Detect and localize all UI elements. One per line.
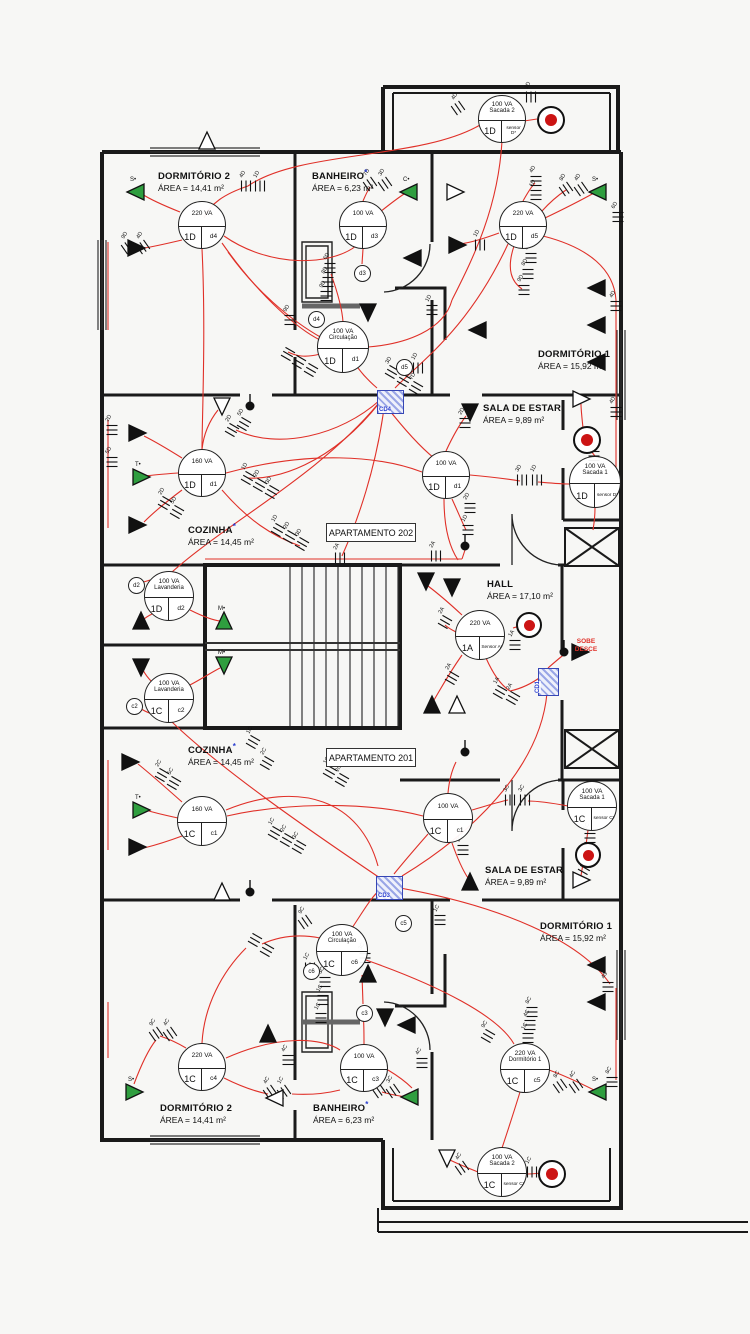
conductor-count-label: 1D — [271, 514, 280, 523]
conductor-count-label: 2A — [438, 606, 447, 615]
room-name: BANHEIRO* — [313, 1100, 374, 1114]
wire-path — [134, 1040, 156, 1084]
conductor-count-label: 1A — [508, 629, 517, 638]
room-name: DORMITÓRIO 1 — [540, 918, 612, 932]
sensor-light-dot — [545, 114, 557, 126]
outlet-type-letter: C• — [403, 177, 409, 183]
luminaire-sala-201: 100 VA1Cc1 — [423, 793, 473, 843]
stair-treads — [205, 567, 400, 726]
luminaire-d4: 220 VA1Dd4 — [178, 201, 226, 249]
luminaire-sacada2-202: 100 VASacada 21Dsensor D* — [478, 95, 526, 143]
outlet-green-triangle — [589, 1084, 606, 1100]
conductor-count-label: 8D — [559, 173, 568, 182]
conductor-count-label: 4D — [574, 173, 583, 182]
wire-path — [202, 249, 204, 449]
conductor-tick — [378, 177, 392, 191]
luminaire-switch-key: d4 — [201, 227, 225, 248]
conductor-count-label: 3D — [378, 168, 387, 177]
conductor-tick — [458, 846, 469, 855]
door-thresholds — [302, 306, 360, 1022]
conductor-count-label: 4C — [281, 1044, 290, 1053]
conductor-tick — [518, 475, 527, 486]
outlet-green-triangle — [133, 802, 150, 818]
wire-path — [402, 693, 547, 876]
outlet-white-triangle — [214, 883, 230, 900]
luminaire-circuit: 1D — [479, 121, 501, 142]
luminaire-circuit: 1D — [340, 227, 362, 248]
conductor-tick — [574, 182, 588, 196]
conductor-count-label: 5C — [167, 767, 176, 776]
conductor-tick — [304, 363, 318, 376]
outlet-green-triangle — [133, 469, 150, 485]
distribution-board-label: CD4 — [379, 407, 391, 413]
conductor-count-label: 1D — [530, 464, 539, 473]
luminaire-coz-201: 160 VA1Cc1 — [177, 796, 227, 846]
luminaire-coz-202: 160 VA1Dd1 — [178, 449, 226, 497]
luminaire-switch-key: d1 — [201, 475, 225, 496]
switch-key-d3: d3 — [354, 265, 371, 282]
wire-path — [446, 416, 466, 451]
conductor-count-label: 2D — [283, 521, 292, 530]
luminaire-switch-key: d3 — [362, 227, 386, 248]
conductor-count-label: 2A — [506, 682, 515, 691]
room-name: DORMITÓRIO 1 — [538, 346, 610, 360]
switch-key-c3: c3 — [356, 1005, 373, 1022]
outlet-type-letter: T• — [135, 795, 141, 801]
outlet-black-triangle — [398, 1017, 415, 1033]
room-note-asterisk: * — [233, 522, 236, 531]
luminaire-circuit: 1D — [500, 227, 522, 248]
luminaire-power: 100 VA — [582, 788, 603, 795]
luminaire-switch-key: c5 — [524, 1070, 549, 1092]
conductor-count-label: 6D — [611, 201, 620, 210]
luminaire-circuit: 1C — [501, 1070, 524, 1092]
conductor-count-label: 9C — [298, 906, 307, 915]
luminaire-power: 220 VA — [513, 210, 534, 217]
luminaire-hall: 220 VA1ASensor A* — [455, 610, 505, 660]
luminaire-c4: 220 VA1Cc4 — [178, 1043, 226, 1091]
room-label-dorm2-202: DORMITÓRIO 2ÁREA = 14,41 m² — [158, 168, 230, 193]
wire-path — [262, 936, 320, 944]
conductor-count-label: 1D — [529, 179, 538, 188]
conductor-tick — [409, 381, 423, 394]
conductor-tick — [321, 292, 332, 301]
room-label-banheiro-202: BANHEIRO*ÁREA = 6,23 m² — [312, 168, 373, 193]
conductor-count-label: 2D — [158, 487, 167, 496]
wire-path — [472, 800, 508, 810]
luminaire-power: 100 VA — [438, 803, 459, 810]
outlet-white-triangle — [447, 184, 464, 200]
conductor-count-label: 2D — [105, 414, 114, 423]
outlet-type-letter: S• — [130, 177, 136, 183]
distribution-board-cd1: CD1 — [538, 668, 559, 696]
conductor-count-label: 6D — [323, 252, 332, 261]
wire-path — [448, 762, 456, 793]
luminaire-circuit: 1C — [317, 952, 341, 975]
room-area: ÁREA = 14,45 m² — [188, 537, 254, 547]
outlet-type-letter: M• — [218, 650, 225, 656]
luminaire-power: 100 VA — [159, 680, 180, 687]
luminaire-power: 220 VA — [192, 1052, 213, 1059]
wire-path — [434, 655, 462, 700]
luminaire-room-tag: Sacada 2 — [489, 108, 514, 115]
conductor-tick — [335, 773, 349, 786]
outlet-black-triangle — [449, 237, 466, 253]
luminaire-switch-key: sensor C* — [591, 808, 616, 830]
conductor-count-label: 2C — [155, 759, 164, 768]
luminaire-circ-202: 100 VACirculação1Dd1 — [317, 321, 369, 373]
outlet-black-triangle — [588, 280, 605, 296]
outlet-black-triangle — [462, 873, 478, 890]
outlet-green-triangle — [589, 184, 606, 200]
conductor-tick — [476, 240, 485, 251]
conductor-tick — [603, 983, 614, 992]
luminaire-circuit: 1A — [456, 637, 479, 659]
room-name: COZINHA* — [188, 522, 254, 536]
conductor-count-label: 3C — [518, 784, 527, 793]
wire-path — [228, 252, 322, 338]
outlet-black-triangle — [424, 696, 440, 713]
wire-path — [146, 810, 178, 818]
conductor-count-label: 1A — [493, 676, 502, 685]
outlet-white-triangle — [439, 1150, 455, 1167]
conductor-count-label: 2A — [429, 540, 438, 549]
conductor-tick — [163, 1027, 177, 1041]
wire-path — [362, 249, 363, 264]
room-area: ÁREA = 9,89 m² — [485, 877, 563, 887]
conductor-count-label: 2D — [225, 414, 234, 423]
conductor-count-label: 9D — [283, 304, 292, 313]
luminaire-circuit: 1C — [179, 1069, 201, 1090]
wire-path — [224, 1078, 268, 1094]
outlet-black-triangle — [588, 994, 605, 1010]
wire-path — [292, 1090, 340, 1094]
conductor-count-label: 1C — [314, 1002, 323, 1011]
luminaire-switch-key: c1 — [201, 823, 226, 845]
switch-key-c5: c5 — [395, 915, 412, 932]
conductor-tick — [531, 191, 542, 200]
conductor-tick — [265, 485, 279, 498]
outlet-black-triangle — [360, 304, 376, 321]
conductor-count-label: 4D — [136, 231, 145, 240]
conductor-count-label: 1D — [473, 229, 482, 238]
luminaire-power: 160 VA — [192, 806, 213, 813]
conductor-count-label: 3D — [515, 464, 524, 473]
outlet-type-letter: T• — [135, 462, 141, 468]
luminaire-power: 100 VA — [436, 460, 457, 467]
luminaire-power: 160 VA — [192, 458, 213, 465]
luminaire-circuit: 1C — [424, 820, 447, 842]
luminaire-switch-key: sensor D* — [594, 484, 620, 507]
wire-path — [144, 240, 182, 248]
conductor-tick — [170, 505, 184, 518]
distribution-board-cd4: CD4 — [377, 390, 404, 414]
conductor-count-label: 4C — [455, 1152, 464, 1161]
ceiling-button-symbol — [461, 534, 470, 551]
conductor-tick — [432, 551, 441, 562]
luminaire-c3: 100 VA1Cc3 — [340, 1044, 388, 1092]
wire-path — [331, 274, 343, 322]
luminaire-power: 100 VA — [159, 578, 180, 585]
stair-note-desce: DESCE — [575, 646, 597, 653]
luminaire-switch-key: c3 — [363, 1070, 387, 1091]
conductor-count-label: 1D — [241, 462, 250, 471]
room-name: HALL — [487, 576, 553, 590]
conductor-tick — [298, 915, 312, 929]
sensor-light-point — [575, 842, 601, 868]
conductor-count-label: 4C — [163, 1018, 172, 1027]
conductor-tick — [519, 286, 530, 295]
wire-path — [248, 402, 380, 478]
conductor-count-label: 9C — [481, 1020, 490, 1029]
luminaire-sala-202: 100 VA1Dd1 — [422, 451, 470, 499]
luminaire-power: 220 VA — [470, 620, 491, 627]
outlet-green-triangle — [400, 184, 417, 200]
wire-path — [202, 410, 218, 449]
outlet-type-letter: S• — [128, 1077, 134, 1083]
luminaire-circuit: 1D — [145, 598, 168, 620]
luminaire-circuit: 1D — [318, 349, 342, 372]
outlet-black-triangle — [377, 1009, 393, 1026]
luminaire-circuit: 1D — [179, 475, 201, 496]
wire-path — [538, 482, 570, 484]
conductor-tick — [506, 691, 520, 704]
room-area: ÁREA = 14,41 m² — [160, 1115, 232, 1125]
conductor-tick — [510, 641, 521, 650]
wire-path — [236, 400, 380, 439]
conductor-count-label: 2D — [253, 469, 262, 478]
floor-plan-canvas: 4D1D9D4D4D1D7D3D8D4D4D1D6D1D6D8D9D4D4D6D… — [0, 0, 750, 1334]
luminaire-switch-key: d2 — [168, 598, 193, 620]
conductor-tick — [553, 1079, 567, 1093]
sensor-light-dot — [581, 434, 593, 446]
wire-path — [545, 193, 594, 218]
wire-path — [142, 194, 180, 212]
conductor-count-label: 3C — [503, 784, 512, 793]
conductor-tick — [149, 1027, 163, 1041]
conductor-count-label: 1D — [461, 514, 470, 523]
room-label-dorm2-201: DORMITÓRIO 2ÁREA = 14,41 m² — [160, 1100, 232, 1125]
conductor-count-label: 2A — [333, 542, 342, 551]
room-area: ÁREA = 14,41 m² — [158, 183, 230, 193]
room-area: ÁREA = 6,23 m² — [312, 183, 373, 193]
stair-note-sobe: SOBE — [577, 638, 595, 645]
luminaire-room-tag: Dormitório 1 — [509, 1057, 542, 1064]
luminaire-circ-201: 100 VACirculação1Cc6 — [316, 924, 368, 976]
room-label-sala-202: SALA DE ESTARÁREA = 9,89 m² — [483, 400, 561, 425]
ceiling-button-symbol — [461, 740, 470, 757]
room-name: BANHEIRO* — [312, 168, 373, 182]
conductor-count-label: 1D — [411, 352, 420, 361]
room-area: ÁREA = 15,92 m² — [538, 361, 610, 371]
luminaire-power: 220 VA — [515, 1050, 536, 1057]
conductor-count-label: 5D — [237, 408, 246, 417]
conductor-count-label: 5D — [170, 496, 179, 505]
outlet-green-triangle — [216, 657, 232, 674]
conductor-count-label: 9D — [121, 231, 130, 240]
luminaire-switch-key: c1 — [447, 820, 472, 842]
room-label-banheiro-201: BANHEIRO*ÁREA = 6,23 m² — [313, 1100, 374, 1125]
sensor-light-dot — [546, 1168, 558, 1180]
conductor-count-label: 8D — [521, 258, 530, 267]
luminaire-power: 100 VA — [585, 463, 606, 470]
conductor-tick — [292, 840, 306, 853]
conductor-count-label: 2C — [260, 747, 269, 756]
outlet-black-triangle — [260, 1025, 276, 1042]
conductor-count-label: 4C — [263, 1076, 272, 1085]
outlet-black-triangle — [588, 317, 605, 333]
outlet-green-triangle — [127, 184, 144, 200]
wire-path — [452, 843, 468, 878]
luminaire-power: 100 VA — [354, 1053, 375, 1060]
sensor-light-point — [538, 1160, 566, 1188]
outlet-black-triangle — [129, 425, 146, 441]
conductor-count-label: 4C — [569, 1070, 578, 1079]
luminaire-room-tag: Circulação — [328, 938, 356, 945]
luminaire-switch-key: c2 — [168, 700, 193, 722]
room-note-asterisk: * — [233, 742, 236, 751]
outlet-black-triangle — [588, 957, 605, 973]
luminaire-switch-key: c4 — [201, 1069, 225, 1090]
luminaire-d5: 220 VA1Dd5 — [499, 201, 547, 249]
luminaire-circuit: 1D — [423, 477, 445, 498]
luminaire-room-tag: Lavanderia — [154, 585, 184, 592]
luminaire-switch-key: d5 — [522, 227, 546, 248]
luminaire-circuit: 1C — [178, 823, 201, 845]
conductor-tick — [167, 776, 181, 789]
luminaire-sacada1-201: 100 VASacada 11Csensor C* — [567, 781, 617, 831]
luminaire-circuit: 1C — [568, 808, 591, 830]
conductor-count-label: 5D — [105, 446, 114, 455]
wire-path — [226, 796, 378, 866]
room-area: ÁREA = 15,92 m² — [540, 933, 612, 943]
conductor-count-label: 4D — [239, 170, 248, 179]
luminaire-c5: 220 VADormitório 11Cc5 — [500, 1043, 550, 1093]
conductor-count-label: 3D — [295, 528, 304, 537]
conductor-tick — [533, 475, 542, 486]
conductor-tick — [256, 181, 265, 192]
conductor-tick — [451, 101, 465, 115]
wire-path — [470, 475, 520, 481]
ceiling-button-symbol — [246, 880, 255, 897]
luminaire-sacada2-201: 100 VASacada 21Csensor C* — [477, 1147, 527, 1197]
luminaire-switch-key: Sensor A* — [479, 637, 504, 659]
room-label-cozinha-201: COZINHA*ÁREA = 14,45 m² — [188, 742, 254, 767]
wire-path — [452, 141, 502, 300]
room-note-asterisk: * — [364, 168, 367, 177]
floor-plan-drawing: 4D1D9D4D4D1D7D3D8D4D4D1D6D1D6D8D9D4D4D6D… — [0, 0, 750, 1334]
outlet-white-triangle — [199, 132, 215, 149]
room-area: ÁREA = 17,10 m² — [487, 591, 553, 601]
wire-path — [581, 404, 583, 428]
luminaire-switch-key: d1 — [342, 349, 368, 372]
room-label-hall: HALLÁREA = 17,10 m² — [487, 576, 553, 601]
distribution-board-cd3: CD3 — [376, 876, 403, 900]
conductor-tick — [417, 1059, 428, 1068]
outlet-type-letter: S• — [592, 177, 598, 183]
outlet-black-triangle — [404, 250, 421, 266]
luminaire-switch-key: d1 — [445, 477, 469, 498]
luminaire-switch-key: c6 — [341, 952, 367, 975]
wire-path — [502, 1092, 520, 1148]
conductor-count-label: 9D — [517, 274, 526, 283]
wire-path — [146, 473, 178, 476]
room-area: ÁREA = 6,23 m² — [313, 1115, 374, 1125]
room-label-dorm1-201: DORMITÓRIO 1ÁREA = 15,92 m² — [540, 918, 612, 943]
luminaire-sacada1-202: 100 VASacada 11Dsensor D* — [569, 456, 621, 508]
room-name: COZINHA* — [188, 742, 254, 756]
luminaire-room-tag: Sacada 2 — [489, 1161, 514, 1168]
outlet-white-triangle — [449, 696, 465, 713]
sensor-light-dot — [583, 850, 594, 861]
conductor-tick — [323, 765, 337, 778]
wire-path — [394, 834, 428, 874]
luminaire-room-tag: Circulação — [329, 335, 357, 342]
conductor-count-label: 8C — [605, 1066, 614, 1075]
luminaire-d3: 100 VA1Dd3 — [339, 201, 387, 249]
conductor-count-label: 9C — [149, 1018, 158, 1027]
luminaire-power: 100 VA — [353, 210, 374, 217]
wire-path — [202, 948, 246, 1043]
room-label-cozinha-202: COZINHA*ÁREA = 14,45 m² — [188, 522, 254, 547]
room-name: SALA DE ESTAR — [483, 400, 561, 414]
luminaire-switch-key: sensor D* — [501, 121, 525, 142]
conductor-tick — [523, 1034, 534, 1043]
luminaire-power: 220 VA — [192, 210, 213, 217]
outlet-black-triangle — [129, 517, 146, 533]
conductor-tick — [248, 933, 262, 946]
conductor-count-label: 8C — [525, 996, 534, 1005]
conductor-tick — [260, 756, 274, 769]
outlet-black-triangle — [418, 573, 434, 590]
sensor-light-point — [516, 612, 542, 638]
conductor-count-label: 4D — [529, 165, 538, 174]
apartment-tag-202: APARTAMENTO 202 — [326, 523, 416, 542]
room-name: DORMITÓRIO 2 — [158, 168, 230, 182]
outlet-type-letter: M• — [218, 606, 225, 612]
wire-path — [227, 805, 423, 816]
conductor-count-label: 1C — [433, 904, 442, 913]
conductor-tick — [414, 363, 423, 374]
conductor-tick — [465, 504, 476, 513]
conductor-count-label: 4C — [415, 1047, 424, 1056]
conductor-count-label: 1C — [303, 952, 312, 961]
conductor-tick — [283, 1056, 294, 1065]
room-label-sala-201: SALA DE ESTARÁREA = 9,89 m² — [485, 862, 563, 887]
wire-path — [138, 764, 182, 802]
switch-key-d4: d4 — [308, 311, 325, 328]
outlet-white-triangle — [266, 1090, 283, 1106]
room-label-dorm1-202: DORMITÓRIO 1ÁREA = 15,92 m² — [538, 346, 610, 371]
luminaire-power: 100 VA — [492, 1154, 513, 1161]
outlet-black-triangle — [444, 579, 460, 596]
luminaire-lav-201: 100 VALavanderia1Cc2 — [144, 673, 194, 723]
outlet-type-letter: S• — [592, 1077, 598, 1083]
luminaire-circuit: 1D — [570, 484, 594, 507]
conductor-tick — [242, 181, 251, 192]
luminaire-power: 100 VA — [333, 328, 354, 335]
room-name: DORMITÓRIO 2 — [160, 1100, 232, 1114]
wire-path — [462, 550, 465, 559]
conductor-tick — [528, 1167, 537, 1178]
luminaire-lav-202: 100 VALavanderia1Dd2 — [144, 571, 194, 621]
conductor-tick — [260, 943, 274, 956]
sensor-light-point — [537, 106, 565, 134]
luminaire-switch-key: sensor C* — [501, 1174, 526, 1196]
room-area: ÁREA = 14,45 m² — [188, 757, 254, 767]
luminaire-room-tag: Sacada 1 — [582, 470, 607, 477]
conductor-count-label: 1C — [268, 817, 277, 826]
